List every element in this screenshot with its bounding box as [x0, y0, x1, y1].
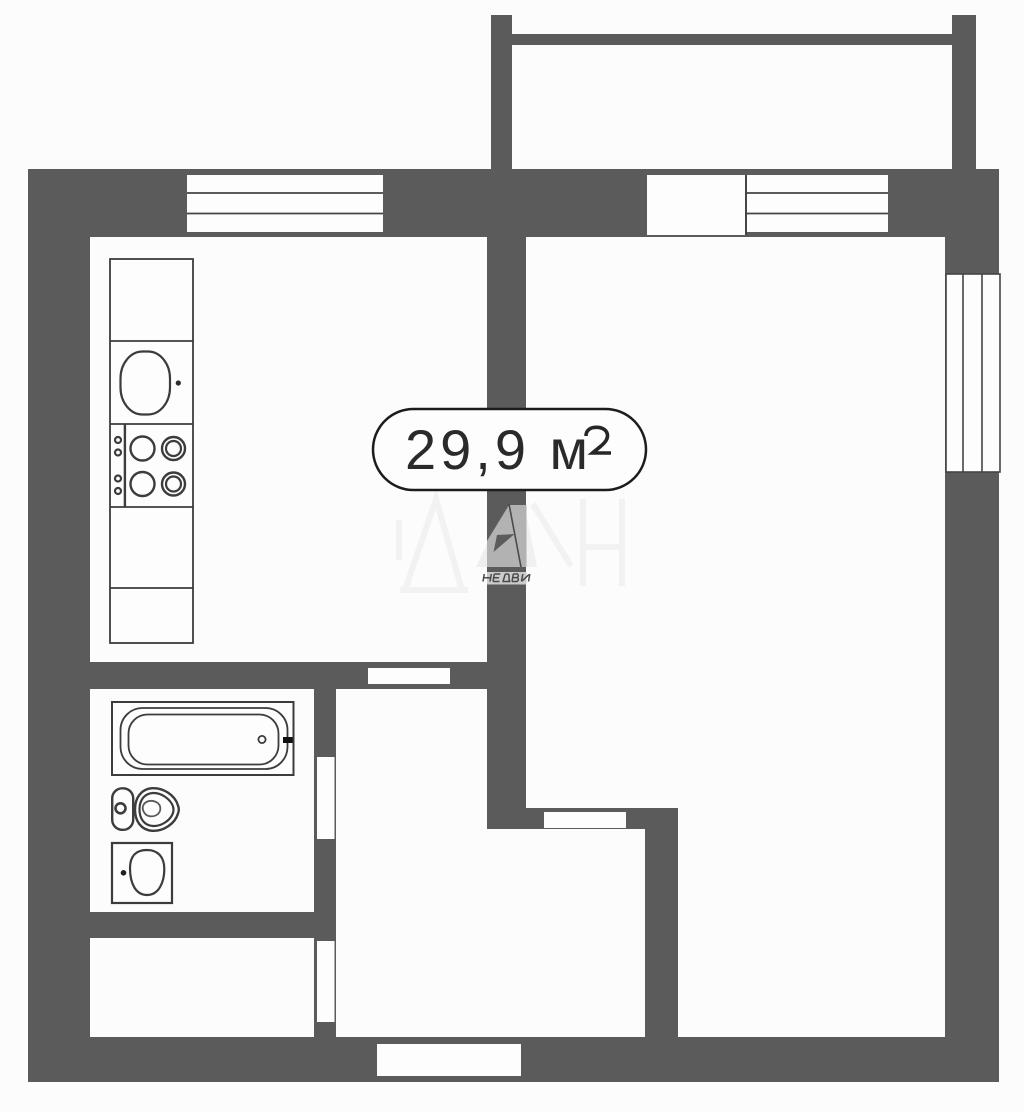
svg-text:29,9 м: 29,9 м	[405, 418, 592, 481]
